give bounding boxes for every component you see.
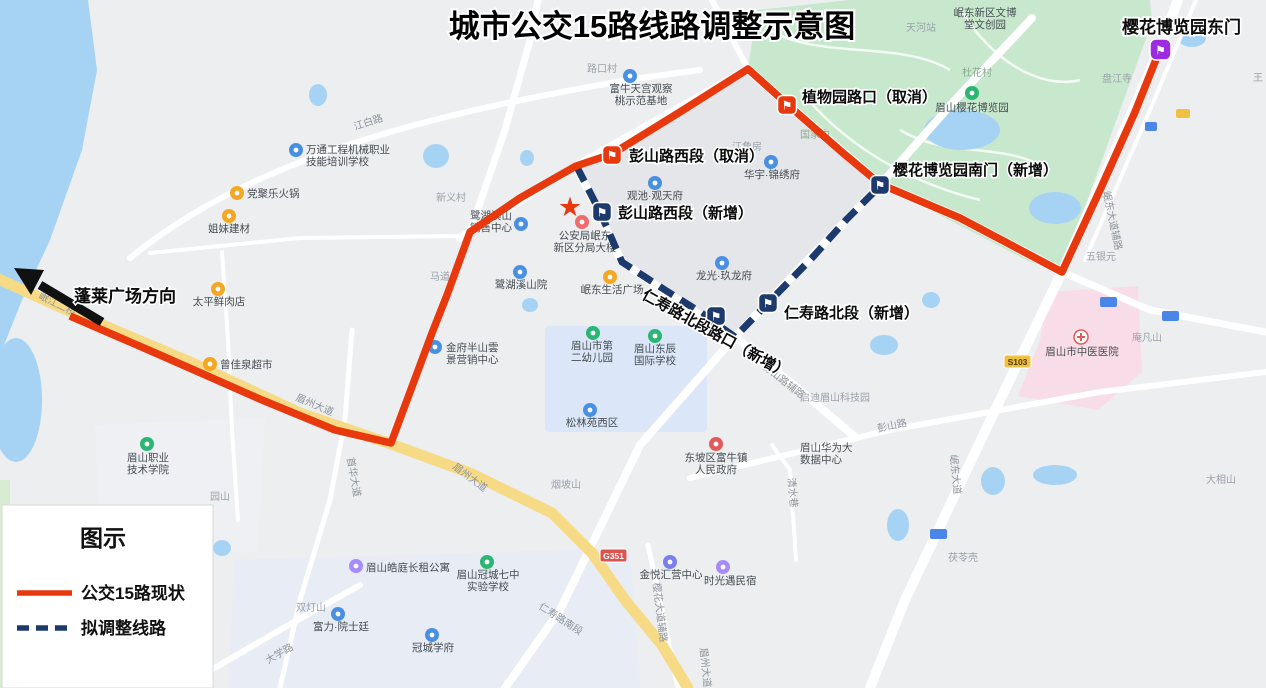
bus-flag-icon: ⚑ bbox=[875, 179, 886, 193]
svg-text:富牛天宫观察: 富牛天宫观察 bbox=[610, 82, 673, 95]
svg-text:S103: S103 bbox=[1008, 357, 1028, 367]
badge-g351: G351 bbox=[600, 549, 627, 562]
label-qidi: 启迪眉山科技园 bbox=[800, 391, 870, 404]
svg-text:冠城学府: 冠城学府 bbox=[412, 641, 454, 654]
road-chip bbox=[930, 529, 947, 539]
label-duhuacun: 杜花村 bbox=[962, 66, 992, 79]
svg-text:太平鲜肉店: 太平鲜肉店 bbox=[193, 295, 246, 308]
svg-text:眉山华为大: 眉山华为大 bbox=[800, 441, 853, 454]
svg-text:国际学校: 国际学校 bbox=[634, 354, 676, 367]
svg-text:岷东生活广场: 岷东生活广场 bbox=[581, 283, 644, 296]
terminus-label: 樱花博览园东门 bbox=[1122, 17, 1241, 37]
bus-flag-icon: ⚑ bbox=[711, 310, 722, 324]
label-tianhezhan: 天河站 bbox=[906, 21, 936, 34]
svg-text:眉山皓庭长租公寓: 眉山皓庭长租公寓 bbox=[366, 561, 450, 574]
label-fulingke: 茯苓壳 bbox=[948, 551, 978, 564]
label-panjiangsi: 盘江寺 bbox=[1102, 72, 1132, 85]
legend-current-label: 公交15路现状 bbox=[81, 583, 186, 603]
label-xinyicun: 新义村 bbox=[436, 191, 466, 204]
svg-text:实验学校: 实验学校 bbox=[467, 580, 509, 593]
svg-text:姐妹建材: 姐妹建材 bbox=[208, 222, 250, 235]
star-landmark-icon: ★ bbox=[558, 192, 582, 222]
svg-text:新区分局大楼: 新区分局大楼 bbox=[554, 241, 617, 254]
svg-text:堂文创园: 堂文创园 bbox=[964, 18, 1006, 31]
stop-label: 仁寿路北段（新增） bbox=[784, 304, 919, 322]
stop-label: 植物园路口（取消） bbox=[802, 88, 937, 106]
page-title: 城市公交15路线路调整示意图 bbox=[449, 9, 855, 44]
svg-text:眉山东辰: 眉山东辰 bbox=[634, 342, 676, 355]
svg-text:万通工程机械职业: 万通工程机械职业 bbox=[306, 143, 390, 156]
svg-text:金悦汇营中心: 金悦汇营中心 bbox=[640, 568, 703, 581]
stop-label: 彭山路西段（取消） bbox=[629, 147, 764, 165]
route-adjustment-map: 江白路 岷江二桥 眉州大道 眉州大道 眉州大道 彭山路 彭山路辅路 仁寿路南段 … bbox=[0, 0, 1266, 688]
svg-text:技术学院: 技术学院 bbox=[127, 463, 169, 476]
road-chip bbox=[1100, 297, 1117, 307]
direction-label: 蓬莱广场方向 bbox=[74, 286, 176, 306]
svg-text:时光遇民宿: 时光遇民宿 bbox=[704, 574, 757, 587]
svg-text:二幼儿园: 二幼儿园 bbox=[571, 351, 613, 364]
svg-text:眉山市中医医院: 眉山市中医医院 bbox=[1045, 345, 1119, 358]
svg-text:数据中心: 数据中心 bbox=[800, 453, 842, 466]
stop-label: 樱花博览园南门（新增） bbox=[893, 161, 1058, 179]
label-yuanshan: 园山 bbox=[210, 491, 230, 503]
svg-text:龙光·玖龙府: 龙光·玖龙府 bbox=[696, 269, 752, 282]
svg-text:技能培训学校: 技能培训学校 bbox=[306, 155, 369, 168]
label-shuangdengshan: 双灯山 bbox=[296, 602, 326, 614]
label-lukoucun: 路口村 bbox=[587, 62, 617, 75]
svg-text:东坡区富牛镇: 东坡区富牛镇 bbox=[685, 451, 748, 464]
bus-flag-icon: ⚑ bbox=[763, 297, 774, 311]
label-yanposhan: 烟坡山 bbox=[551, 478, 581, 491]
stop-label: 彭山路西段（新增） bbox=[618, 204, 753, 222]
svg-text:松林苑西区: 松林苑西区 bbox=[566, 416, 619, 429]
legend: 图示 公交15路现状 拟调整线路 bbox=[2, 505, 213, 688]
road-chip bbox=[1145, 122, 1157, 131]
svg-text:金府半山雲: 金府半山雲 bbox=[446, 341, 499, 354]
road-chip bbox=[1162, 311, 1179, 321]
label-anfanshan: 庵凡山 bbox=[1132, 331, 1162, 344]
label-wang: 王 bbox=[1253, 73, 1263, 84]
svg-text:鹭湖溪山院: 鹭湖溪山院 bbox=[495, 278, 548, 291]
poi-chaoshi: 曾佳泉超市 bbox=[203, 357, 273, 371]
svg-text:曾佳泉超市: 曾佳泉超市 bbox=[220, 358, 273, 371]
svg-text:桃示范基地: 桃示范基地 bbox=[615, 94, 668, 107]
svg-text:观池·观天府: 观池·观天府 bbox=[627, 189, 683, 202]
bus-flag-icon: ⚑ bbox=[607, 149, 618, 163]
svg-text:眉山职业: 眉山职业 bbox=[127, 452, 169, 464]
road-chip bbox=[1176, 109, 1190, 118]
label-daxiangshan: 大相山 bbox=[1206, 473, 1236, 486]
legend-adjusted-label: 拟调整线路 bbox=[81, 618, 167, 638]
bus-flag-icon: ⚑ bbox=[782, 99, 793, 113]
svg-text:景营销中心: 景营销中心 bbox=[446, 353, 499, 366]
bus-flag-icon: ⚑ bbox=[1155, 44, 1166, 58]
label-wuyinyuan: 五银元 bbox=[1086, 250, 1116, 263]
svg-text:眉山樱花博览园: 眉山樱花博览园 bbox=[935, 101, 1009, 114]
svg-text:华宇·锦绣府: 华宇·锦绣府 bbox=[744, 168, 800, 181]
svg-text:G351: G351 bbox=[603, 551, 624, 561]
bus-flag-icon: ⚑ bbox=[597, 206, 608, 220]
svg-text:公安局岷东: 公安局岷东 bbox=[559, 229, 612, 242]
svg-text:岷东新区文博: 岷东新区文博 bbox=[954, 6, 1017, 19]
svg-text:眉山冠城七中: 眉山冠城七中 bbox=[457, 568, 520, 581]
legend-title: 图示 bbox=[80, 525, 126, 551]
map-canvas: 江白路 岷江二桥 眉州大道 眉州大道 眉州大道 彭山路 彭山路辅路 仁寿路南段 … bbox=[0, 0, 1266, 688]
svg-text:眉山市第: 眉山市第 bbox=[571, 339, 613, 352]
svg-text:人民政府: 人民政府 bbox=[695, 463, 737, 476]
svg-text:富力·院士廷: 富力·院士廷 bbox=[313, 620, 369, 633]
poi-dangju: 党聚乐火锅 bbox=[230, 186, 300, 200]
svg-text:党聚乐火锅: 党聚乐火锅 bbox=[247, 187, 300, 200]
badge-s103: S103 bbox=[1004, 355, 1031, 368]
